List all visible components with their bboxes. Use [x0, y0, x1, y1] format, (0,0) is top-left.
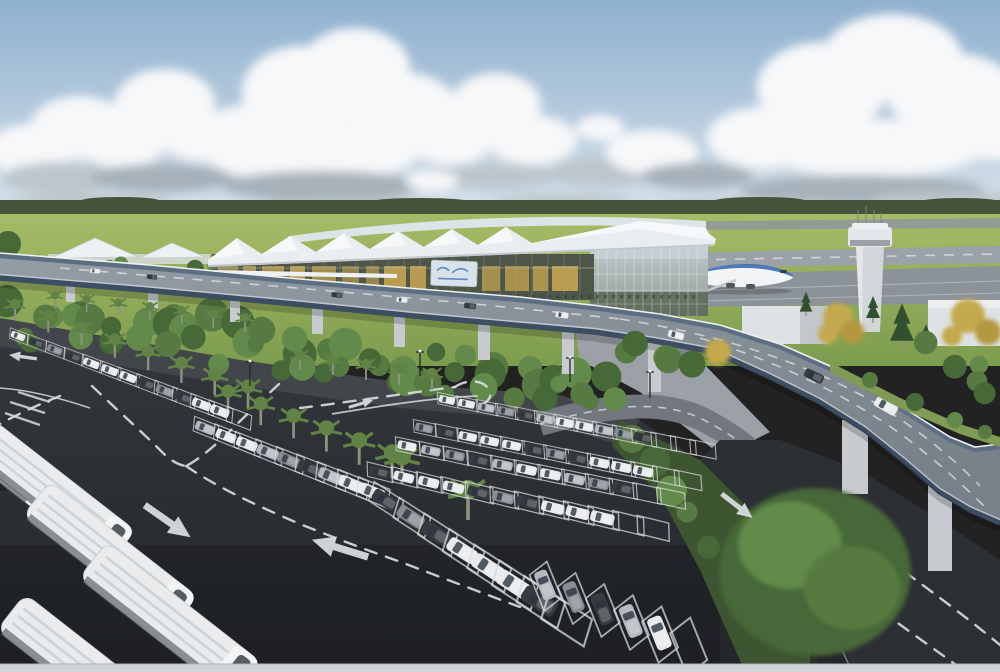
- terminal-window: [533, 266, 548, 291]
- tree: [603, 387, 627, 411]
- car-on-viaduct: [147, 274, 157, 279]
- tree: [677, 502, 698, 523]
- tree: [679, 351, 706, 378]
- terminal-window: [410, 266, 426, 291]
- tree: [655, 346, 682, 373]
- tree: [622, 331, 647, 356]
- airport-rendering: Aerial architectural rendering of an air…: [0, 0, 1000, 672]
- terminal-window: [482, 266, 500, 291]
- tree: [444, 362, 464, 382]
- tree: [943, 355, 967, 379]
- tree: [914, 331, 937, 354]
- tree: [455, 345, 476, 366]
- tree: [427, 343, 445, 361]
- tree: [591, 362, 621, 392]
- tree: [974, 382, 996, 404]
- car-on-viaduct: [90, 268, 100, 273]
- tree: [697, 536, 720, 559]
- rendering-canvas: Aerial architectural rendering of an air…: [0, 0, 1000, 672]
- tree: [272, 360, 292, 380]
- tree: [282, 326, 307, 351]
- tree: [582, 393, 599, 410]
- terminal-sign: [431, 260, 478, 287]
- terminal-window: [505, 266, 529, 291]
- tree: [181, 325, 206, 350]
- window-chrome-strip: [0, 664, 1000, 672]
- tree: [155, 331, 181, 357]
- tree: [551, 376, 568, 393]
- tree: [248, 336, 264, 352]
- terminal-window: [552, 266, 578, 291]
